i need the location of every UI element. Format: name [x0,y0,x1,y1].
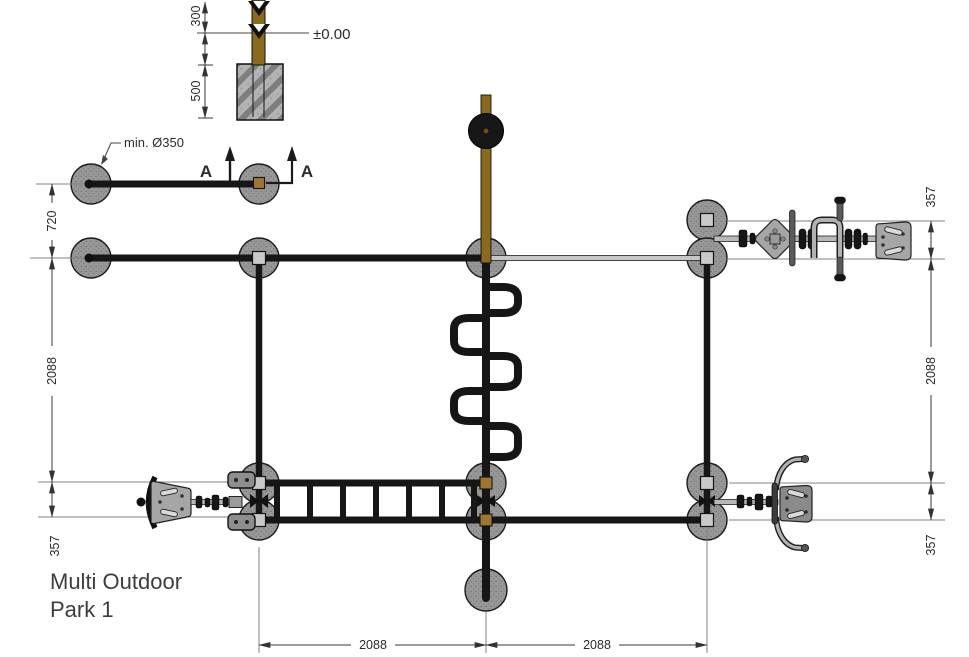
thin-top-bar [489,256,707,261]
dim-left-2088: 2088 [45,357,59,385]
disc-hub [484,129,489,134]
dim-bottom-left-2088: 2088 [359,638,387,652]
beam-end-cap [85,254,94,263]
min-diameter-callout: min. Ø350 [101,135,184,165]
dim-right-357-top: 357 [924,187,938,208]
wood-connector-square [480,477,492,489]
section-letter-left: A [200,162,212,181]
pedal [228,472,255,488]
title-line-2: Park 1 [50,597,114,622]
foundation-section-detail: 300 500 ±0.00 [189,0,350,120]
leader-arrow [101,155,108,165]
dim-left-720: 720 [45,211,59,232]
machine-bottom-right [714,455,812,551]
min-diameter-label: min. Ø350 [124,135,184,150]
backrest-knob [137,498,146,507]
dim-bottom-right-2088: 2088 [583,638,611,652]
foundation-circles [71,164,727,611]
title-line-1: Multi Outdoor [50,569,182,594]
dim-right-357-bottom: 357 [924,535,938,556]
dim-right-2088: 2088 [924,357,938,385]
frame-beams [88,184,707,598]
dimensions-bottom: 2088 2088 [259,636,707,652]
seat-plate [151,481,191,523]
wood-connector-square [480,514,492,526]
back-plate [876,222,911,260]
wood-connector-square [254,178,265,189]
pedal [228,514,255,530]
beam-end-cap [85,180,94,189]
dimensions-left: 720 2088 357 [45,184,62,556]
dimensions-right: 357 2088 357 [924,187,939,556]
section-letter-right: A [301,162,313,181]
ground-level-label: ±0.00 [313,26,350,43]
dim-above-ground: 300 [189,6,203,27]
plan-drawing: A A min. Ø350 300 500 ±0.00 720 2088 [0,0,969,657]
concrete-footing [237,64,283,120]
section-arrow-left [225,146,235,161]
section-arrow-right [287,146,297,161]
drawing-sheet: A A min. Ø350 300 500 ±0.00 720 2088 [0,0,969,657]
dim-foundation-depth: 500 [189,81,203,102]
machine-top-right [714,197,911,281]
cross-bar [772,483,778,524]
dim-left-357: 357 [48,536,62,557]
hub [229,497,242,508]
machine-bottom-left [137,472,256,530]
drawing-title: Multi Outdoor Park 1 [50,569,182,622]
center-post-assembly [469,95,504,263]
cross-bar [790,210,796,266]
